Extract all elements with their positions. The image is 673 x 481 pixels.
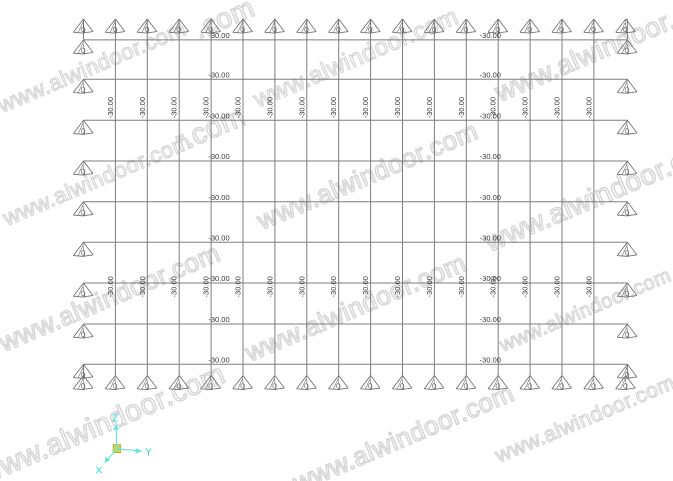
svg-text:-30.00: -30.00 — [489, 97, 498, 118]
svg-text:-30.00: -30.00 — [170, 276, 179, 297]
svg-text:www.alwindoor.com: www.alwindoor.com — [490, 0, 673, 108]
svg-text:-30.00: -30.00 — [480, 70, 501, 79]
svg-text:-30.00: -30.00 — [265, 276, 274, 297]
svg-text:-30.00: -30.00 — [553, 97, 562, 118]
svg-text:-30.00: -30.00 — [265, 97, 274, 118]
svg-text:-30.00: -30.00 — [521, 97, 530, 118]
svg-text:Z: Z — [112, 413, 118, 424]
svg-text:-30.00: -30.00 — [208, 193, 229, 202]
svg-text:-30.00: -30.00 — [584, 97, 593, 118]
svg-text:-30.00: -30.00 — [480, 356, 501, 365]
svg-text:-30.00: -30.00 — [361, 97, 370, 118]
svg-text:-30.00: -30.00 — [480, 315, 501, 324]
svg-text:-30.00: -30.00 — [489, 276, 498, 297]
svg-text:-30.00: -30.00 — [170, 97, 179, 118]
svg-text:-30.00: -30.00 — [106, 97, 115, 118]
svg-text:www.alwindoor.com: www.alwindoor.com — [0, 129, 195, 231]
svg-text:-30.00: -30.00 — [208, 274, 229, 283]
svg-text:-30.00: -30.00 — [138, 276, 147, 297]
svg-text:-30.00: -30.00 — [553, 276, 562, 297]
svg-text:-30.00: -30.00 — [208, 315, 229, 324]
svg-text:-30.00: -30.00 — [361, 276, 370, 297]
svg-text:-30.00: -30.00 — [521, 276, 530, 297]
svg-text:www.alwindoor.com: www.alwindoor.com — [0, 16, 190, 118]
svg-text:-30.00: -30.00 — [480, 31, 501, 40]
svg-text:www.alwindoor.com: www.alwindoor.com — [491, 371, 673, 468]
svg-text:-30.00: -30.00 — [425, 97, 434, 118]
svg-text:-30.00: -30.00 — [393, 276, 402, 297]
svg-text:-30.00: -30.00 — [208, 31, 229, 40]
svg-text:-30.00: -30.00 — [393, 97, 402, 118]
svg-text:Y: Y — [145, 447, 152, 459]
svg-text:-30.00: -30.00 — [297, 276, 306, 297]
svg-text:-30.00: -30.00 — [234, 276, 243, 297]
svg-text:-30.00: -30.00 — [584, 276, 593, 297]
svg-text:-30.00: -30.00 — [208, 70, 229, 79]
svg-text:-30.00: -30.00 — [425, 276, 434, 297]
svg-text:www.alwindoor.com: www.alwindoor.com — [240, 247, 471, 368]
svg-text:-30.00: -30.00 — [208, 112, 229, 121]
svg-text:www.alwindoor.com: www.alwindoor.com — [479, 130, 673, 258]
svg-text:-30.00: -30.00 — [457, 97, 466, 118]
svg-text:-30.00: -30.00 — [202, 276, 211, 297]
svg-text:-30.00: -30.00 — [202, 97, 211, 118]
svg-text:-30.00: -30.00 — [297, 97, 306, 118]
svg-text:-30.00: -30.00 — [234, 97, 243, 118]
svg-text:-30.00: -30.00 — [480, 152, 501, 161]
svg-text:-30.00: -30.00 — [208, 234, 229, 243]
svg-text:-30.00: -30.00 — [208, 356, 229, 365]
svg-text:-30.00: -30.00 — [208, 152, 229, 161]
svg-text:-30.00: -30.00 — [138, 97, 147, 118]
svg-text:-30.00: -30.00 — [480, 234, 501, 243]
svg-text:-30.00: -30.00 — [457, 276, 466, 297]
svg-text:www.alwindoor.com: www.alwindoor.com — [288, 377, 519, 481]
svg-text:X: X — [96, 465, 103, 477]
svg-text:-30.00: -30.00 — [329, 276, 338, 297]
svg-text:www.alwindoor.com: www.alwindoor.com — [252, 115, 483, 236]
svg-text:-30.00: -30.00 — [480, 193, 501, 202]
svg-text:-30.00: -30.00 — [329, 97, 338, 118]
svg-text:-30.00: -30.00 — [106, 276, 115, 297]
